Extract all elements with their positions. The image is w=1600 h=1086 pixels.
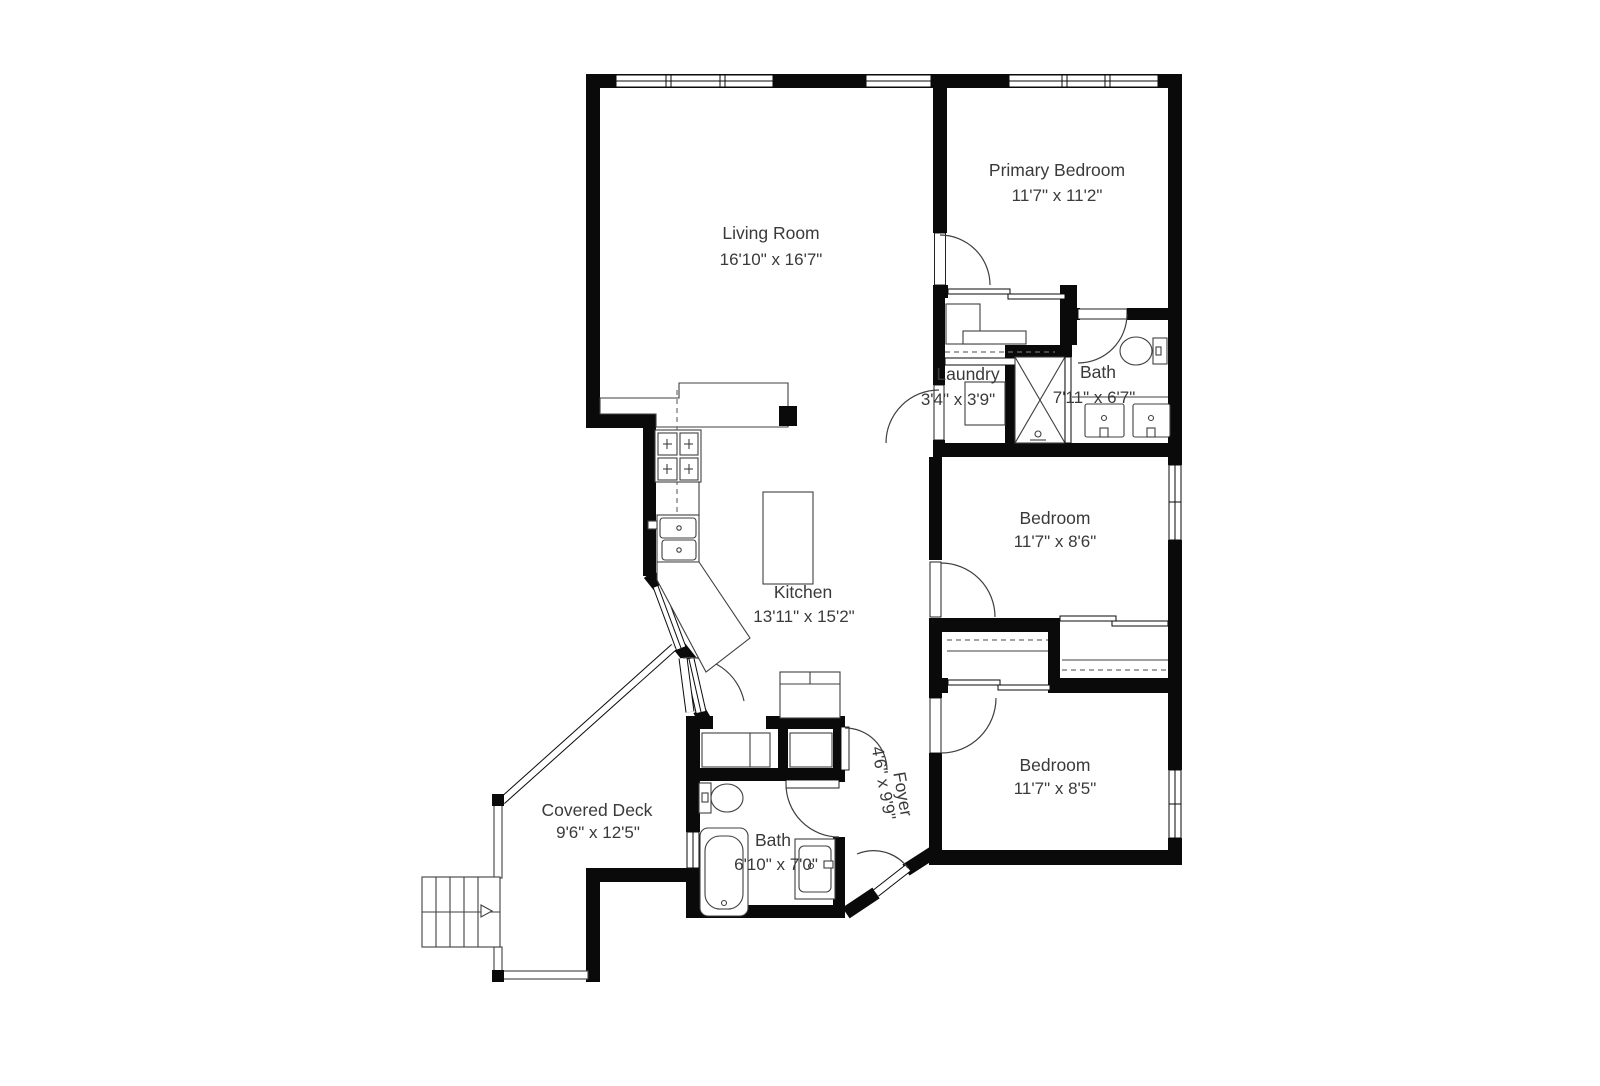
kitchen-fixtures bbox=[600, 383, 840, 718]
room-dims: 11'7" x 8'5" bbox=[1014, 779, 1097, 798]
room-name: Bath bbox=[755, 830, 791, 850]
room-label-foyer: Foyer 4'6" x 9'9" bbox=[868, 745, 917, 821]
refrigerator-cabinet-icon bbox=[780, 672, 840, 718]
range-stove-icon bbox=[655, 430, 701, 482]
floor-plan: Living Room 16'10" x 16'7" Primary Bedro… bbox=[0, 0, 1600, 1086]
room-dims: 3'4" x 3'9" bbox=[921, 390, 995, 409]
stairs-icon bbox=[422, 877, 500, 947]
floor-plan-page: Living Room 16'10" x 16'7" Primary Bedro… bbox=[0, 0, 1600, 1086]
room-name: Living Room bbox=[722, 223, 819, 243]
door-swing-icon bbox=[930, 698, 996, 753]
room-name: Bath bbox=[1080, 362, 1116, 382]
room-name: Covered Deck bbox=[542, 800, 653, 820]
window-icon bbox=[1169, 465, 1181, 540]
room-label-living-room: Living Room 16'10" x 16'7" bbox=[720, 223, 823, 269]
room-name: Bedroom bbox=[1019, 508, 1090, 528]
room-dims: 11'7" x 11'2" bbox=[1012, 186, 1103, 205]
toilet-icon bbox=[1120, 337, 1167, 365]
toilet-icon bbox=[699, 783, 743, 813]
door-swing-icon bbox=[786, 780, 839, 837]
window-icon bbox=[616, 75, 773, 87]
sliding-closet-door-icon bbox=[1060, 616, 1168, 626]
room-label-bedroom-middle: Bedroom 11'7" x 8'6" bbox=[1014, 508, 1097, 551]
room-name: Bedroom bbox=[1019, 755, 1090, 775]
window-icon bbox=[1169, 770, 1181, 838]
window-icon bbox=[866, 75, 931, 87]
kitchen-island-icon bbox=[763, 492, 813, 584]
room-dims: 11'7" x 8'6" bbox=[1014, 532, 1097, 551]
closet-shelf-icon bbox=[790, 733, 832, 767]
sliding-closet-door-icon bbox=[948, 289, 1065, 299]
room-label-bedroom-lower: Bedroom 11'7" x 8'5" bbox=[1014, 755, 1097, 798]
closet-shelf-icon bbox=[702, 733, 770, 767]
room-label-primary-bedroom: Primary Bedroom 11'7" x 11'2" bbox=[989, 160, 1125, 205]
door-swing-icon bbox=[935, 233, 991, 285]
sliding-closet-door-icon bbox=[948, 680, 1050, 690]
column-icon bbox=[779, 406, 797, 426]
room-name: Primary Bedroom bbox=[989, 160, 1125, 180]
window-icon bbox=[1009, 75, 1158, 87]
window-icon bbox=[687, 832, 699, 868]
door-swing-icon bbox=[930, 562, 995, 617]
room-label-covered-deck: Covered Deck 9'6" x 12'5" bbox=[542, 800, 653, 842]
room-label-kitchen: Kitchen 13'11" x 15'2" bbox=[753, 582, 854, 626]
door-swing-icon bbox=[1078, 309, 1127, 363]
door-swing-icon bbox=[857, 851, 908, 893]
room-dims: 7'11" x 6'7" bbox=[1053, 388, 1136, 407]
room-dims: 9'6" x 12'5" bbox=[556, 823, 640, 842]
room-dims: 16'10" x 16'7" bbox=[720, 250, 823, 269]
room-name: Kitchen bbox=[774, 582, 832, 602]
room-name: Laundry bbox=[936, 364, 999, 384]
room-dims: 13'11" x 15'2" bbox=[753, 607, 854, 626]
room-dims: 6'10" x 7'0" bbox=[734, 855, 818, 874]
closet-shelf-icon bbox=[963, 331, 1026, 344]
